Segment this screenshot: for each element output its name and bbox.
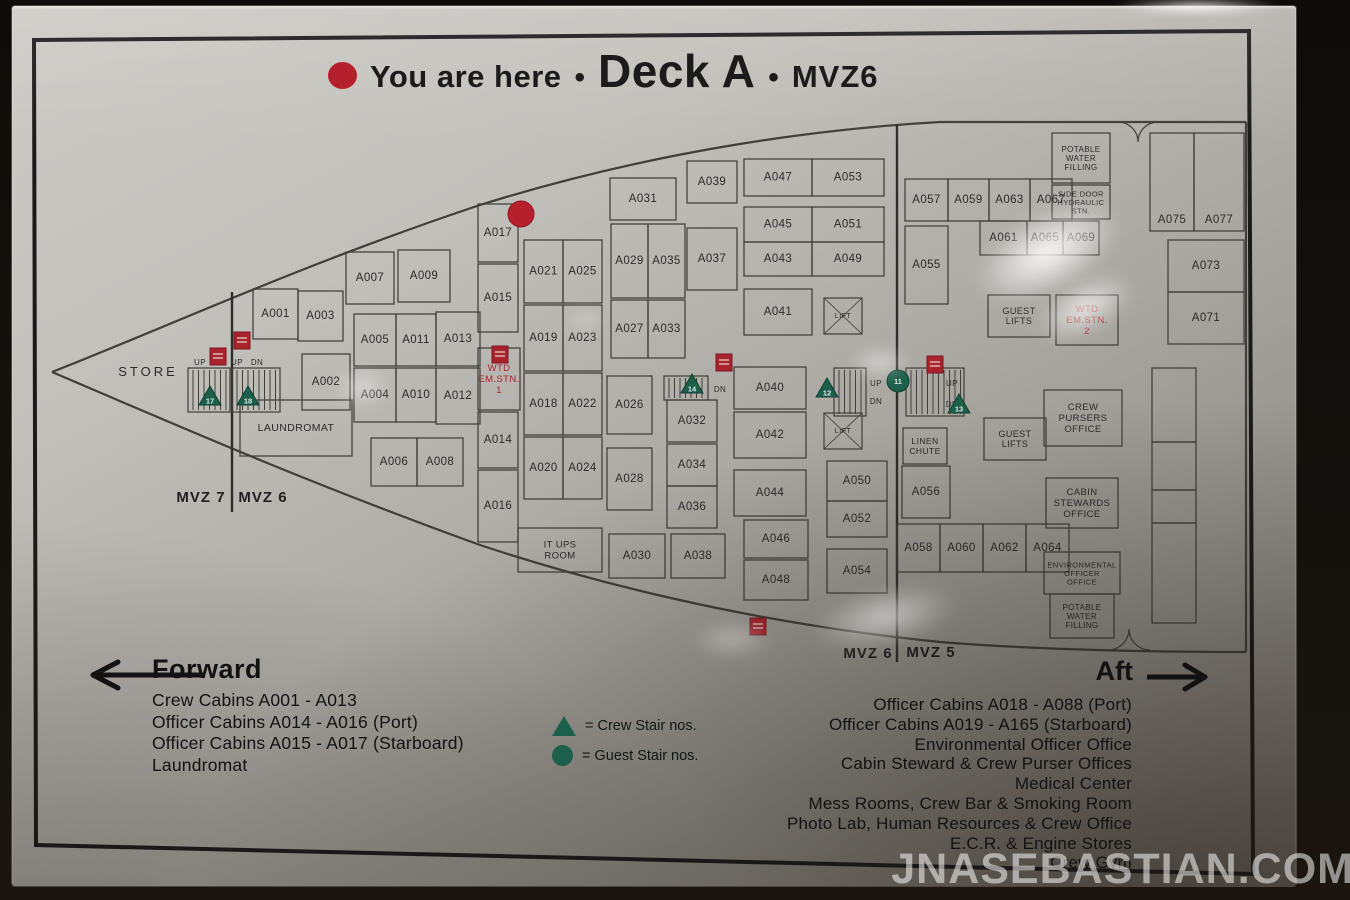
forward-item: Crew Cabins A001 - A013 (152, 690, 464, 712)
title-deck-name: Deck A (598, 44, 755, 98)
aft-heading: Aft (1000, 656, 1133, 687)
forward-item: Officer Cabins A014 - A016 (Port) (152, 712, 464, 734)
aft-item: Officer Cabins A018 - A088 (Port) (530, 695, 1132, 715)
title-you-are-here: You are here (370, 59, 562, 95)
aft-item: Environmental Officer Office (530, 735, 1132, 755)
forward-heading: Forward (152, 654, 262, 685)
aft-item: Photo Lab, Human Resources & Crew Office (530, 814, 1132, 834)
aft-arrow-icon (1145, 662, 1213, 692)
aft-item: Officer Cabins A019 - A165 (Starboard) (530, 715, 1132, 735)
forward-item: Laundromat (152, 755, 464, 777)
forward-item: Officer Cabins A015 - A017 (Starboard) (152, 733, 464, 755)
you-are-here-dot-icon (328, 62, 357, 89)
title-bullet-icon: • (768, 61, 779, 95)
sign-title: You are here • Deck A • MVZ6 (328, 44, 879, 98)
photo-of-deck-plan-sign: A001A003A007A009A005A011A013A002A004A010… (0, 0, 1350, 900)
aft-list: Officer Cabins A018 - A088 (Port) Office… (530, 695, 1132, 873)
aft-item: E.C.R. & Engine Stores (530, 834, 1132, 854)
aft-item: Cabin Steward & Crew Purser Offices (530, 754, 1132, 774)
aft-item: Mess Rooms, Crew Bar & Smoking Room (530, 794, 1132, 814)
title-mvz-zone: MVZ6 (792, 59, 879, 95)
forward-list: Crew Cabins A001 - A013 Officer Cabins A… (152, 690, 464, 776)
aft-item: Medical Center (530, 774, 1132, 794)
title-bullet-icon: • (575, 61, 586, 95)
aft-item: Crew Gym (530, 853, 1132, 873)
